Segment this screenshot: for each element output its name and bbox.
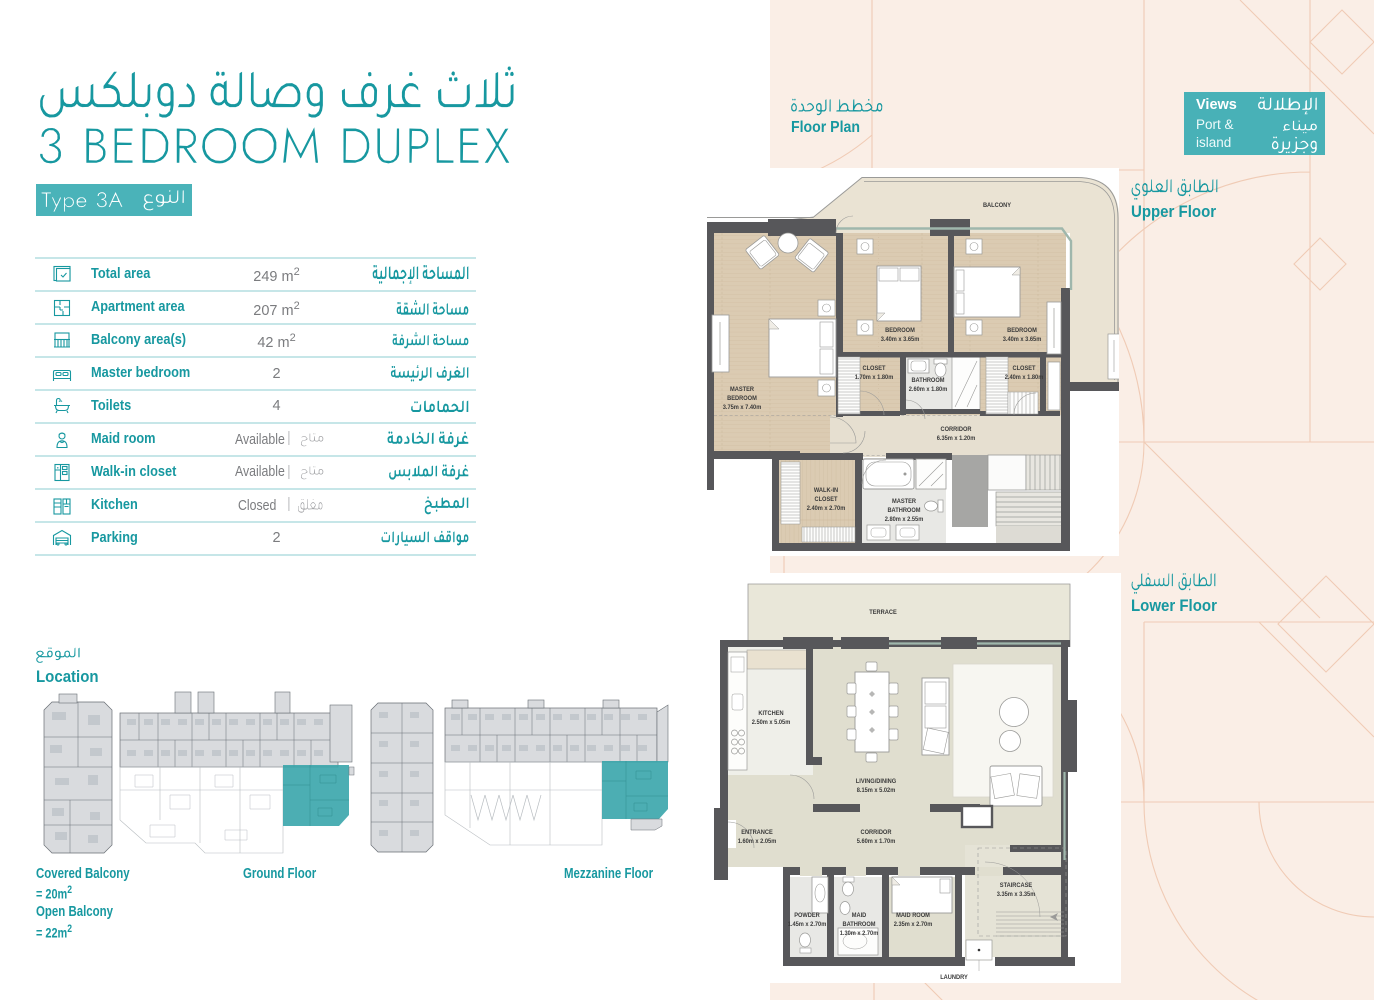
svg-text:CLOSET: CLOSET (1012, 366, 1035, 372)
svg-text:BATHROOM: BATHROOM (842, 922, 875, 928)
svg-text:MASTER: MASTER (730, 387, 755, 393)
svg-text:KITCHEN: KITCHEN (758, 711, 783, 717)
svg-text:5.60m x 1.70m: 5.60m x 1.70m (857, 839, 896, 845)
svg-text:BEDROOM: BEDROOM (1007, 328, 1037, 334)
svg-text:3.40m x 3.65m: 3.40m x 3.65m (1003, 337, 1042, 343)
svg-text:CLOSET: CLOSET (814, 497, 837, 503)
svg-text:TERRACE: TERRACE (869, 610, 897, 616)
svg-text:2.60m x 1.80m: 2.60m x 1.80m (909, 387, 948, 393)
svg-text:3.75m x 7.40m: 3.75m x 7.40m (723, 405, 762, 411)
svg-text:BEDROOM: BEDROOM (885, 328, 915, 334)
svg-text:2.40m x 2.70m: 2.40m x 2.70m (807, 506, 846, 512)
svg-text:MAID ROOM: MAID ROOM (896, 913, 930, 919)
svg-text:6.35m x 1.20m: 6.35m x 1.20m (937, 436, 976, 442)
svg-text:BATHROOM: BATHROOM (887, 508, 920, 514)
svg-text:3.35m x 3.35m: 3.35m x 3.35m (997, 892, 1036, 898)
svg-text:2.35m x 2.70m: 2.35m x 2.70m (894, 922, 933, 928)
svg-text:WALK-IN: WALK-IN (814, 488, 838, 494)
svg-text:1.70m x 1.80m: 1.70m x 1.80m (855, 375, 894, 381)
svg-text:2.50m x 5.05m: 2.50m x 5.05m (752, 720, 791, 726)
svg-text:BATHROOM: BATHROOM (911, 378, 944, 384)
svg-text:ENTRANCE: ENTRANCE (741, 830, 773, 836)
svg-text:CORRIDOR: CORRIDOR (941, 427, 973, 433)
svg-text:MAID: MAID (852, 913, 867, 919)
svg-text:POWDER: POWDER (794, 913, 820, 919)
svg-text:1.60m x 2.05m: 1.60m x 2.05m (738, 839, 777, 845)
svg-text:2.80m x 2.55m: 2.80m x 2.55m (885, 517, 924, 523)
svg-text:BALCONY: BALCONY (983, 203, 1011, 209)
svg-text:1.45m x 2.70m: 1.45m x 2.70m (788, 922, 827, 928)
svg-text:2.40m x 1.80m: 2.40m x 1.80m (1005, 375, 1044, 381)
svg-text:BEDROOM: BEDROOM (727, 396, 757, 402)
svg-text:LAUNDRY: LAUNDRY (940, 975, 968, 981)
svg-text:CLOSET: CLOSET (862, 366, 885, 372)
svg-text:3.40m x 3.65m: 3.40m x 3.65m (881, 337, 920, 343)
svg-text:8.15m x 5.02m: 8.15m x 5.02m (857, 788, 896, 794)
svg-text:CORRIDOR: CORRIDOR (861, 830, 893, 836)
svg-text:STAIRCASE: STAIRCASE (1000, 883, 1032, 889)
svg-text:1.30m x 2.70m: 1.30m x 2.70m (840, 931, 879, 937)
svg-text:LIVING/DINING: LIVING/DINING (856, 779, 897, 785)
svg-text:MASTER: MASTER (892, 499, 917, 505)
